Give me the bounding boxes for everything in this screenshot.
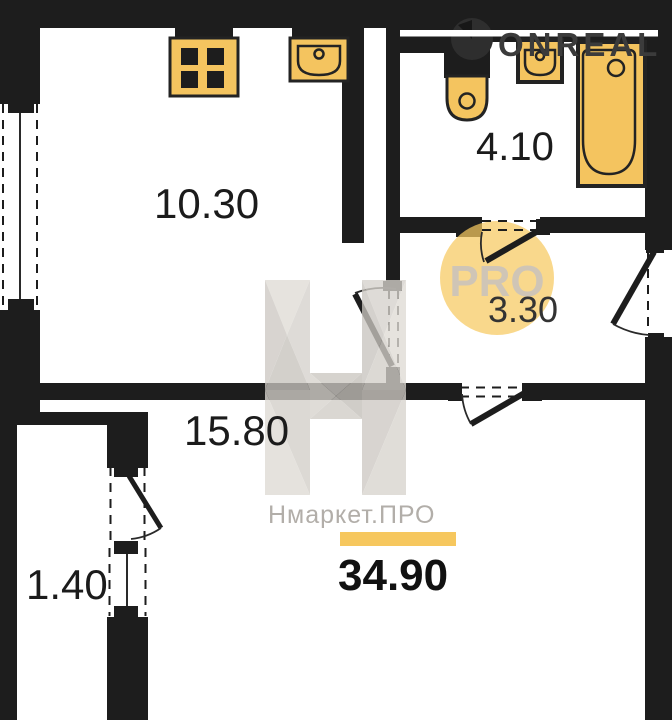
room-door (448, 383, 542, 424)
balcony-top-wall (4, 412, 107, 425)
total-area-accent-bar (340, 532, 456, 546)
balcony-door (111, 464, 162, 540)
bathroom-area-label: 4.10 (476, 125, 554, 169)
bathtub-icon (578, 42, 645, 186)
right-wall-lower (645, 337, 672, 720)
brand-watermark-text: Нмаркет.ПРО (268, 501, 436, 529)
h-logo-watermark (265, 280, 406, 495)
bathroom-bottom-wall-right (540, 217, 645, 233)
balcony-outer-wall (0, 425, 17, 720)
floor-plan-drawing: ONREAL 10.30 4.10 PRO 3.30 15.80 1.40 Нм… (0, 0, 672, 720)
kitchen-sink-icon (290, 28, 348, 81)
hallway-area-label: 3.30 (488, 289, 558, 330)
stove-icon (170, 28, 238, 96)
balcony-divider-upper (107, 412, 148, 468)
walls (0, 0, 672, 720)
onreal-watermark-text: ONREAL (498, 26, 661, 63)
left-wall-mid (0, 310, 40, 425)
floor-plan: ONREAL 10.30 4.10 PRO 3.30 15.80 1.40 Нм… (0, 0, 672, 720)
left-wall-upper (0, 0, 40, 104)
balcony-area-label: 1.40 (26, 561, 108, 608)
balcony-divider-lower (107, 617, 148, 720)
entrance-door (613, 242, 664, 346)
kitchen-window (3, 99, 37, 313)
room-wall-right (530, 383, 645, 400)
room-area-label: 15.80 (184, 407, 289, 454)
hallway-left-wall (386, 28, 400, 288)
balcony-window (110, 541, 146, 619)
kitchen-area-label: 10.30 (154, 180, 259, 227)
total-area-label: 34.90 (338, 551, 448, 600)
